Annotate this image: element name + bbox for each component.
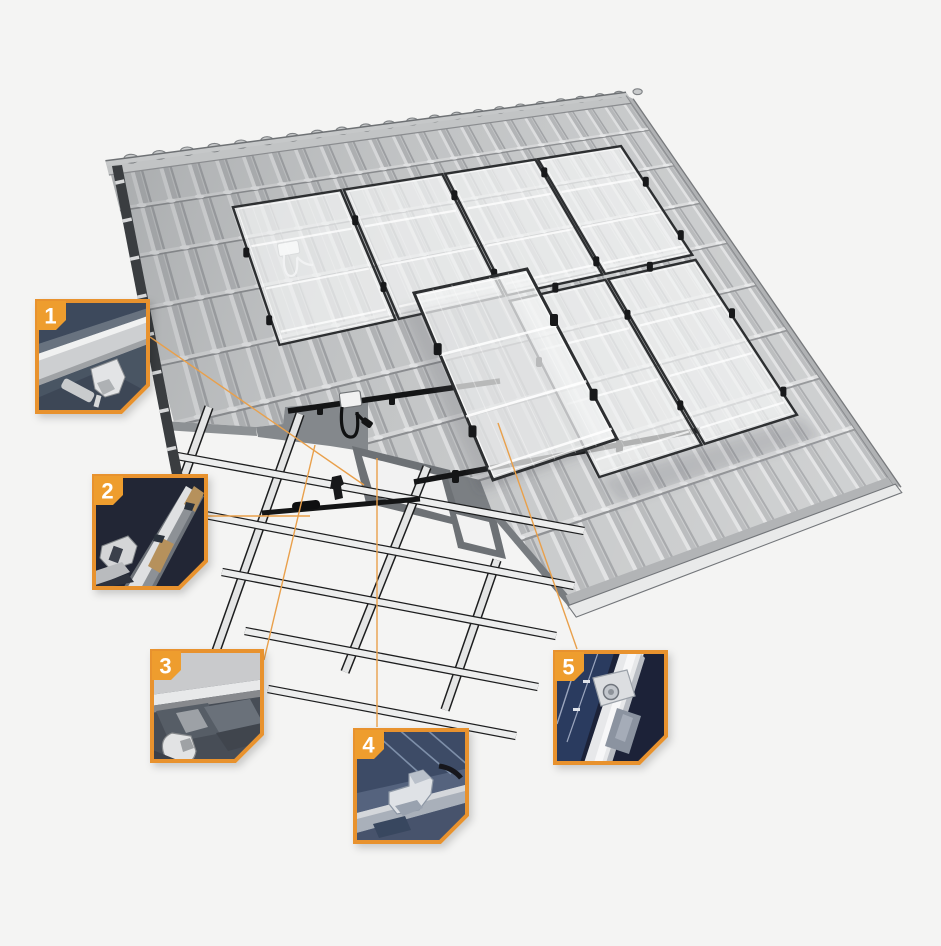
svg-text:5: 5 [562,655,574,680]
svg-text:1: 1 [44,304,56,329]
svg-text:2: 2 [101,479,113,504]
svg-text:4: 4 [362,733,375,758]
svg-text:3: 3 [159,654,171,679]
